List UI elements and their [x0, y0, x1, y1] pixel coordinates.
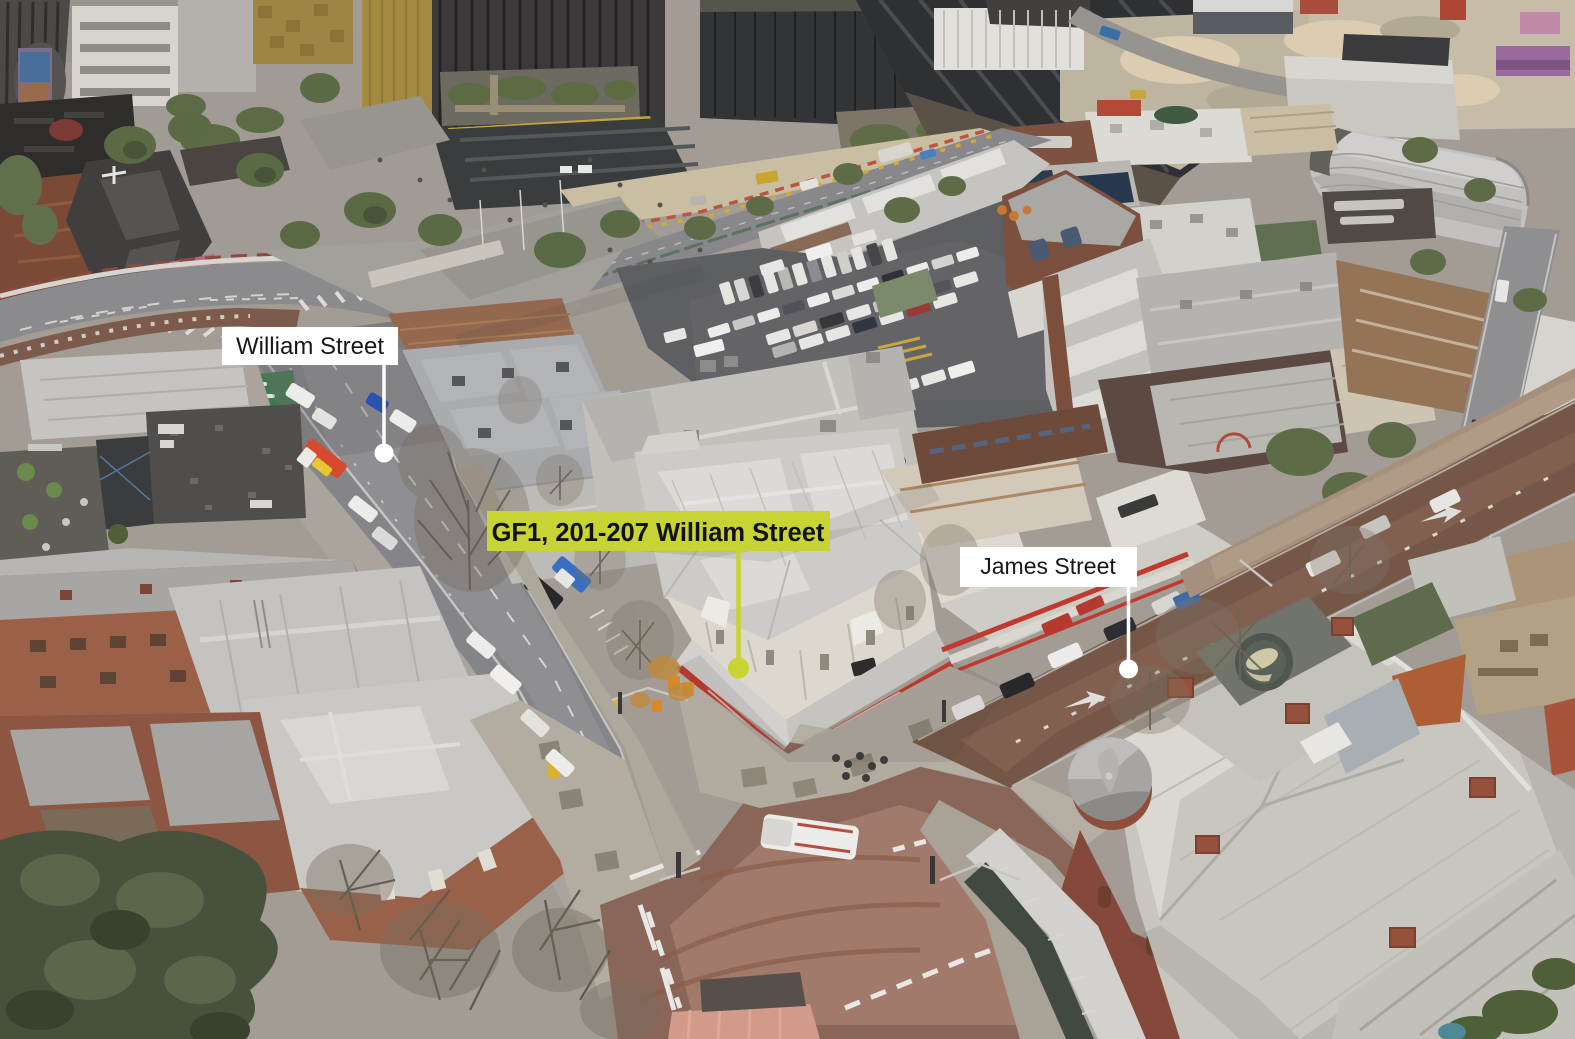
- svg-text:GF1, 201-207 William Street: GF1, 201-207 William Street: [492, 519, 825, 547]
- svg-text:William Street: William Street: [236, 333, 384, 360]
- svg-text:James Street: James Street: [980, 553, 1116, 579]
